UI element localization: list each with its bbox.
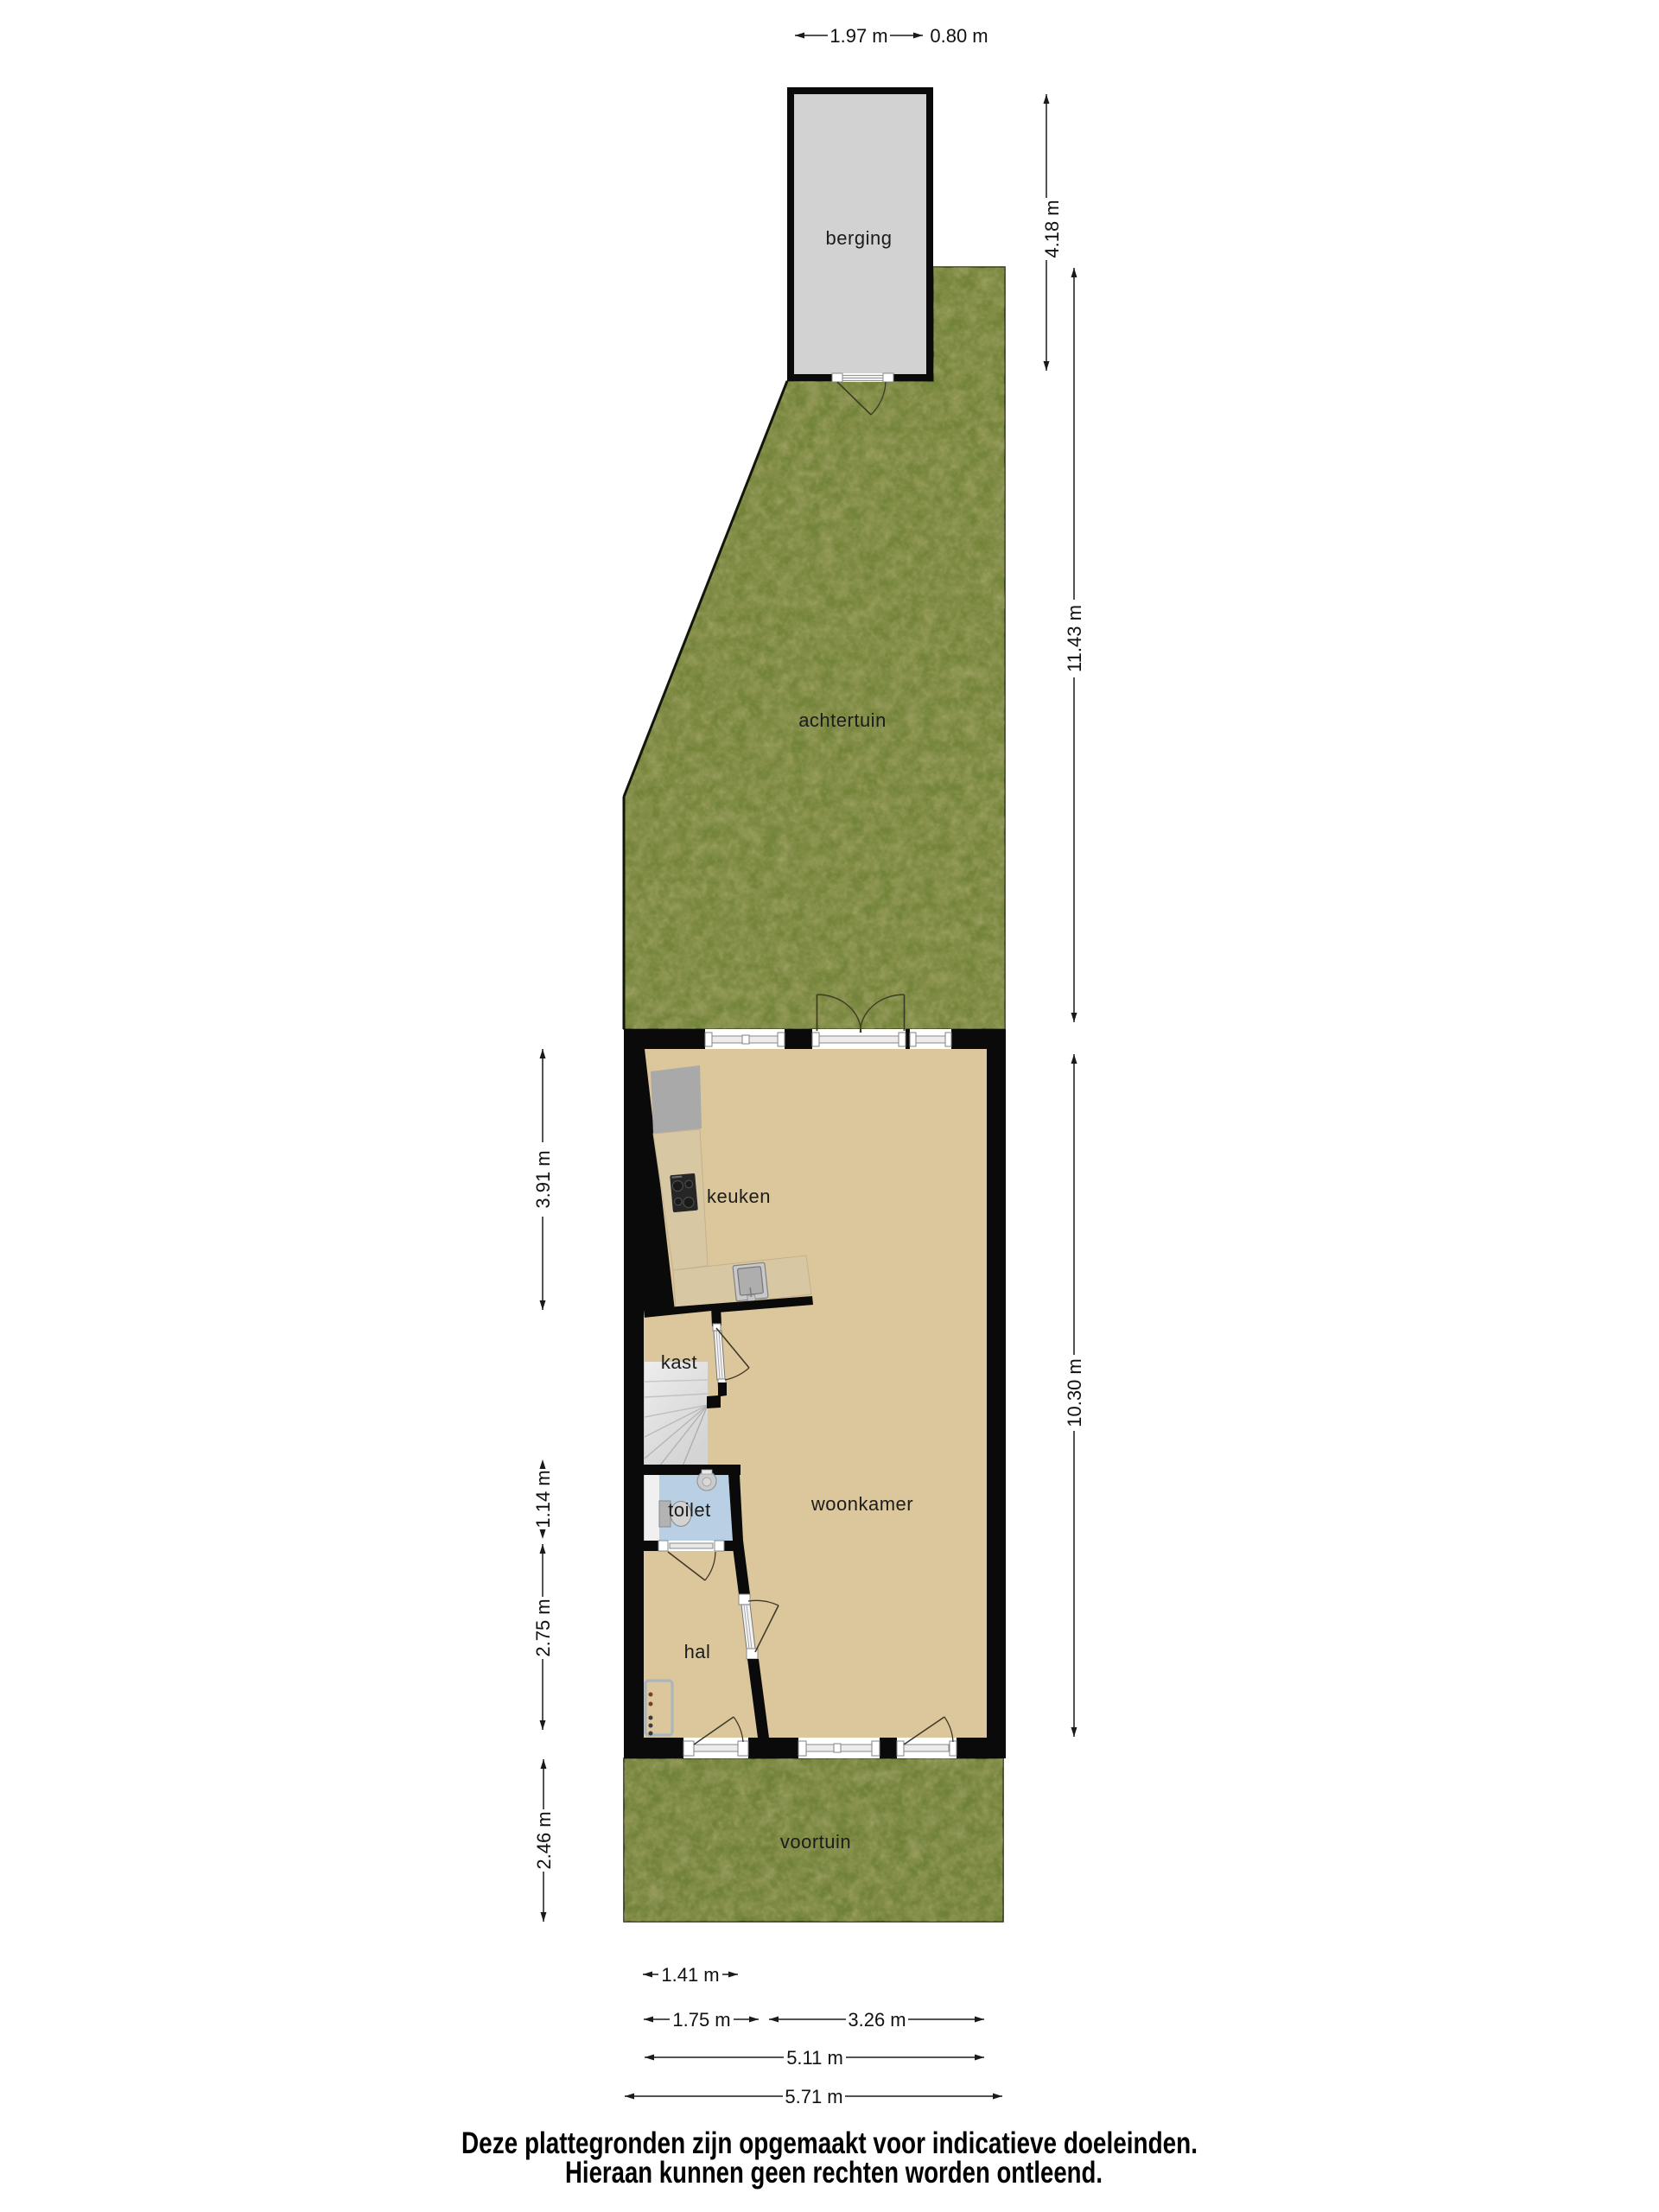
svg-text:hal: hal — [684, 1641, 711, 1662]
svg-text:kast: kast — [661, 1351, 697, 1373]
svg-text:3.26 m: 3.26 m — [848, 2009, 906, 2031]
svg-text:5.71 m: 5.71 m — [785, 2086, 842, 2107]
svg-text:2.46 m: 2.46 m — [533, 1811, 555, 1869]
svg-text:1.97 m: 1.97 m — [829, 25, 887, 47]
svg-text:voortuin: voortuin — [780, 1831, 851, 1853]
svg-text:10.30 m: 10.30 m — [1064, 1358, 1085, 1427]
svg-text:5.11 m: 5.11 m — [786, 2047, 843, 2069]
svg-text:woonkamer: woonkamer — [810, 1493, 913, 1515]
svg-text:11.43 m: 11.43 m — [1064, 605, 1085, 672]
svg-text:4.18 m: 4.18 m — [1041, 200, 1063, 257]
svg-text:berging: berging — [826, 227, 893, 249]
svg-text:2.75 m: 2.75 m — [532, 1599, 554, 1656]
svg-text:0.80 m: 0.80 m — [930, 25, 988, 47]
svg-text:1.75 m: 1.75 m — [672, 2009, 730, 2031]
svg-text:Hieraan kunnen geen rechten wo: Hieraan kunnen geen rechten worden ontle… — [565, 2156, 1103, 2190]
svg-text:toilet: toilet — [668, 1499, 710, 1521]
svg-text:3.91 m: 3.91 m — [532, 1150, 554, 1208]
svg-text:1.14 m: 1.14 m — [532, 1470, 554, 1528]
svg-text:1.41 m: 1.41 m — [661, 1964, 719, 1986]
svg-text:achtertuin: achtertuin — [798, 709, 887, 731]
svg-text:keuken: keuken — [707, 1185, 771, 1207]
